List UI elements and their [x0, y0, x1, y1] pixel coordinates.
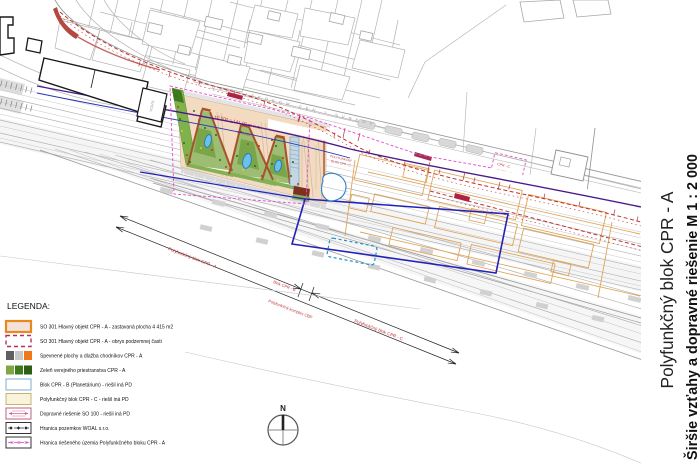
svg-text:Spevnené plochy a dlažba chodn: Spevnené plochy a dlažba chodníkov CPR -…	[40, 353, 143, 359]
svg-text:Dopravné riešenie SO 100 - rie: Dopravné riešenie SO 100 - riešil iná PD	[40, 411, 130, 417]
svg-text:Širšie vzťahy a dopravné rieše: Širšie vzťahy a dopravné riešenie M 1 : …	[683, 154, 700, 460]
svg-text:N: N	[280, 404, 286, 413]
svg-text:SO 301 Hlavný objekt CPR - A -: SO 301 Hlavný objekt CPR - A - obrys pod…	[40, 339, 162, 345]
svg-text:Zeleň verejného priestranstva: Zeleň verejného priestranstva CPR - A	[40, 368, 126, 374]
svg-text:Hranica pozemkov WOAL s.r.o.: Hranica pozemkov WOAL s.r.o.	[40, 426, 110, 432]
svg-text:LEGENDA:: LEGENDA:	[7, 301, 50, 311]
svg-text:SO 301 Hlavný objekt CPR - A -: SO 301 Hlavný objekt CPR - A - zastavaná…	[40, 324, 173, 330]
svg-text:Polyfunkčný blok CPR - C - rie: Polyfunkčný blok CPR - C - riešil iná PD	[40, 397, 129, 403]
svg-text:Blok CPR - B (Planetárium) -: Blok CPR - B (Planetárium) - riešil iná …	[40, 382, 132, 388]
svg-text:Hranica riešeného územia Polyf: Hranica riešeného územia Polyfunkčného b…	[40, 440, 166, 446]
svg-text:Polyfunkčný blok CPR - A: Polyfunkčný blok CPR - A	[657, 191, 677, 388]
